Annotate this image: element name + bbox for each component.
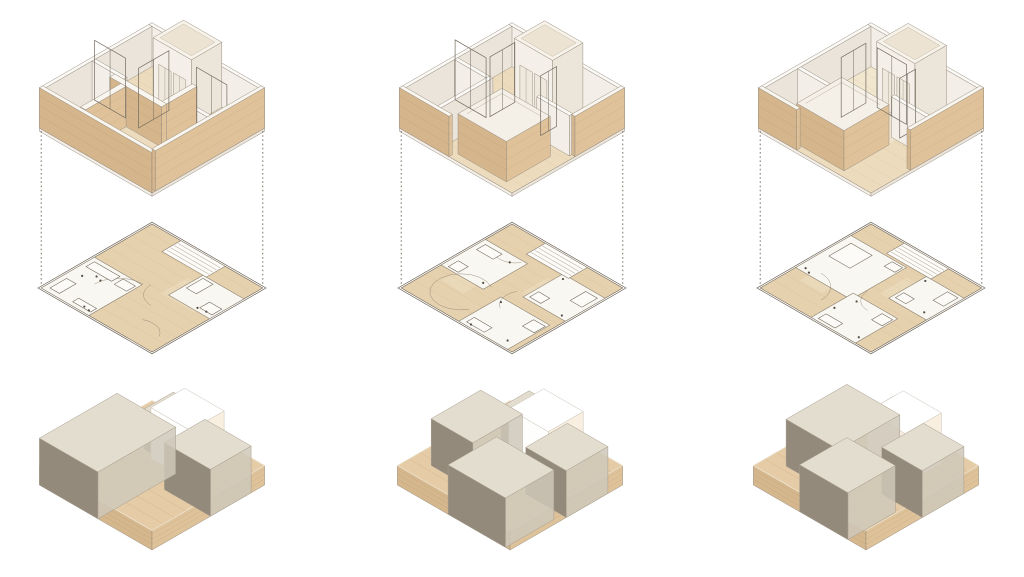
unit-variant-3 <box>753 23 985 550</box>
fixture-mark <box>509 261 511 263</box>
fixture-mark <box>804 267 806 269</box>
fixture-mark <box>482 282 484 284</box>
unit-variant-1 <box>38 20 266 550</box>
massing-view <box>39 388 264 550</box>
fixture-mark <box>562 278 564 280</box>
massing-view <box>753 384 978 550</box>
floor-plan-view <box>38 222 266 354</box>
axonometric-plan-massing-study <box>0 0 1024 577</box>
fixture-mark <box>833 307 835 309</box>
fixture-mark <box>858 336 860 338</box>
fixture-mark <box>924 280 926 282</box>
unit-variant-2 <box>397 21 626 550</box>
fixture-mark <box>81 275 83 277</box>
fixture-mark <box>88 309 90 311</box>
massing-view <box>397 389 622 550</box>
fixture-mark <box>470 323 472 325</box>
fixture-mark <box>808 272 810 274</box>
fixture-mark <box>500 301 502 303</box>
fixture-mark <box>561 314 563 316</box>
fixture-mark <box>196 307 198 309</box>
fixture-mark <box>83 305 85 307</box>
fixture-mark <box>205 311 207 313</box>
axonometric-view <box>39 20 264 196</box>
fixture-mark <box>99 280 101 282</box>
floor-plan-view <box>757 222 985 354</box>
fixture-mark <box>855 300 857 302</box>
fixture-mark <box>923 311 925 313</box>
axonometric-view <box>758 23 983 197</box>
architecture-diagram-panel <box>0 0 1024 577</box>
fixture-mark <box>506 339 508 341</box>
fixture-mark <box>95 275 97 277</box>
axonometric-view <box>399 21 624 197</box>
floor-plan-view <box>398 222 626 354</box>
